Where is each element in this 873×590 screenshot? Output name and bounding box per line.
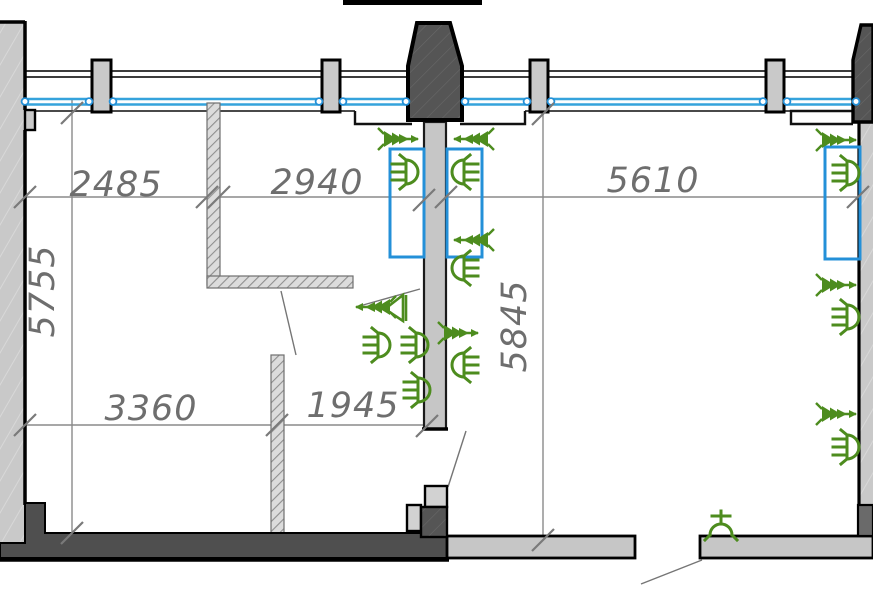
- fixture-arrow-icon: [453, 128, 494, 150]
- fixture-arrow-icon: [378, 128, 419, 150]
- dim-label-3360: 3360: [104, 389, 197, 429]
- fixture-arrow-icon: [355, 296, 396, 318]
- ventilation-shaft-right: [853, 25, 873, 122]
- fixture-arrow-icon: [438, 322, 479, 344]
- dim-label-2485: 2485: [69, 165, 162, 205]
- fixture-arrow-icon: [816, 403, 857, 425]
- socket-outlet-icon: [833, 430, 859, 464]
- socket-outlet-icon: [452, 348, 478, 382]
- socket-outlet-icon: [833, 300, 859, 334]
- socket-outlet-icon: [833, 156, 859, 190]
- dim-label-5755: 5755: [23, 244, 63, 337]
- dim-label-2940: 2940: [270, 163, 363, 203]
- cropped-title-bar: [343, 0, 482, 5]
- dim-label-1945: 1945: [306, 386, 399, 426]
- dimension-labels: 2485 2940 5610 5755 5845 3360 1945: [23, 161, 700, 429]
- floor-plan-screenshot: 2485 2940 5610 5755 5845 3360 1945: [0, 0, 873, 590]
- socket-outlet-icon: [452, 155, 478, 189]
- socket-outlet-icon: [364, 328, 390, 362]
- floor-plan-canvas: 2485 2940 5610 5755 5845 3360 1945: [0, 0, 873, 590]
- horn-speaker-icon: [385, 295, 406, 321]
- socket-outlet-icon: [392, 155, 418, 189]
- fixture-arrow-icon: [453, 229, 494, 251]
- dim-label-5845: 5845: [495, 279, 535, 372]
- bottom-shaft-detail: [407, 486, 447, 537]
- fixture-arrow-icon: [816, 274, 857, 296]
- ventilation-shaft-center: [408, 23, 462, 120]
- dim-label-5610: 5610: [606, 161, 699, 201]
